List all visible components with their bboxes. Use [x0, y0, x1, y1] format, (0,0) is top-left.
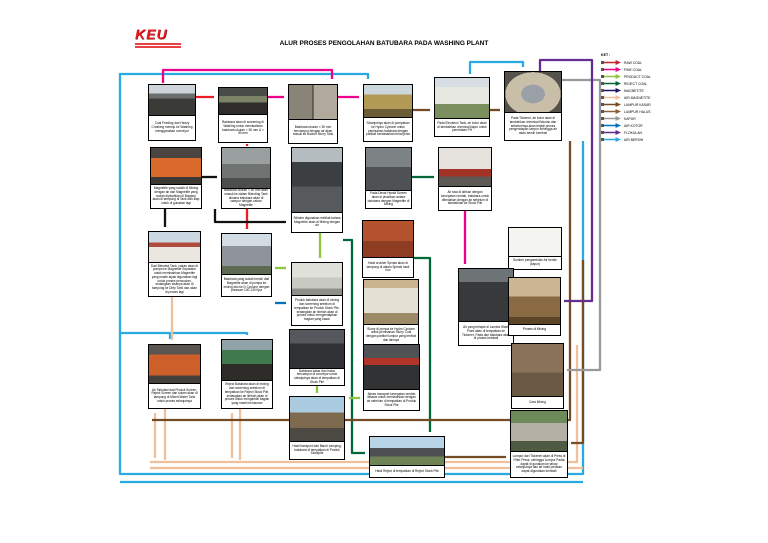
photo-lamela-plant	[459, 269, 513, 321]
step-caption: Pada Elevation Tank, air kotor akan di t…	[437, 122, 488, 133]
legend-arrow-icon	[604, 116, 621, 121]
photo-spirals-material	[363, 221, 413, 257]
legend-arrow-tail	[601, 110, 604, 113]
photo-product-screen	[292, 263, 342, 295]
step-clean-water-source: Sumber pengambilan Air bersih (kapur)	[508, 227, 562, 270]
legend-item: KAPUR	[601, 115, 691, 122]
step-coarse-fine-conveyor: Batubara kasar dan halus bercampur di co…	[289, 329, 345, 386]
photo-mixing-room	[509, 278, 560, 324]
step-filter-press: Lumpur dari Tickener akan di Press di Fi…	[510, 410, 568, 478]
legend-heading: KET :	[601, 53, 691, 57]
step-elevation-tank: Pada Elevation Tank, air kotor akan di t…	[434, 77, 490, 137]
step-caption: Pada Tickener, air kotor akan di tambahk…	[507, 117, 560, 136]
step-caption: Batubara ukuran < 50 mm bercampur dengan…	[291, 126, 336, 137]
legend-item: AIR MAGNETITE	[601, 94, 691, 101]
photo-d-cyclone	[222, 234, 271, 274]
step-caption: Batubara akan di screening di Washing un…	[221, 121, 266, 136]
step-caption: Batubara kasar dan halus bercampur di co…	[292, 370, 343, 385]
logo-underline	[135, 43, 181, 45]
step-caption: Magnetite yang sudah di Mixing dengan ai…	[153, 187, 200, 206]
legend-item: AIR BERSIH	[601, 136, 691, 143]
legend-arrow-icon	[604, 67, 621, 72]
photo-reject-screen	[222, 340, 272, 380]
legend-item: LUMPUR HALUS	[601, 108, 691, 115]
step-caption: Coal Feeding dari Heavy Crushing menuju …	[151, 122, 194, 133]
photo-blending-tank	[222, 148, 270, 188]
step-spirals-box: Hasil crusher Spirals akan di tampung di…	[362, 220, 414, 278]
legend-arrow-icon	[604, 88, 621, 93]
legend-item: FLOKULAN	[601, 129, 691, 136]
legend-arrow-icon	[604, 95, 621, 100]
step-reject-screening: Reject Batubara akan di mixing dan scree…	[221, 339, 273, 409]
step-caption: Air Sirkulasi dari Produk Screen, Reject…	[151, 389, 199, 404]
legend-arrow-tail	[601, 131, 604, 134]
photo-magnetite-machine	[151, 148, 201, 184]
photo-transport-machine	[364, 345, 419, 389]
company-logo: KEU	[135, 27, 195, 48]
step-magnetite-mixing: Magnetite yang sudah di Mixing dengan ai…	[150, 147, 202, 209]
step-caption: Air sisa di alirkan dengan kecepatan ren…	[441, 191, 490, 206]
legend-arrow-icon	[604, 137, 621, 142]
step-silinder: Silinder digunakan melihat bahwa Magneti…	[291, 147, 343, 233]
legend-arrow-icon	[604, 60, 621, 65]
step-coal-feeding: Coal Feeding dari Heavy Crushing menuju …	[148, 84, 196, 141]
photo-reject-conveyor	[370, 437, 444, 465]
legend-arrow-tail	[601, 117, 604, 120]
step-caption: Batubara ukuran < 50 mm akan masuk ke da…	[224, 189, 269, 208]
step-screening: Batubara akan di screening di Washing un…	[218, 87, 268, 143]
step-low-speed-separation: Air sisa di alirkan dengan kecepatan ren…	[438, 147, 492, 211]
step-caption: Hasil crusher Spirals akan di tampung di…	[365, 262, 412, 273]
legend-arrow-tail	[601, 124, 604, 127]
step-slurry-hydro-cyclone: Slurry di pompa ke Hydro Cyclone untuk p…	[363, 279, 419, 346]
logo-underline-2	[135, 46, 181, 48]
step-caption: Lumpur dari Tickener akan di Press di Fi…	[513, 455, 566, 474]
legend-arrow-icon	[604, 81, 621, 86]
photo-filter-press	[511, 411, 567, 451]
photo-conveyor-feeding	[149, 85, 195, 115]
step-caption: Hasil Reject di tempatkan di Reject Stoc…	[372, 470, 443, 474]
photo-mud-pond	[512, 344, 563, 396]
photo-silinder	[292, 148, 342, 212]
step-caption: Silinder digunakan melihat bahwa Magneti…	[294, 217, 341, 228]
photo-conveyor-interior	[290, 330, 344, 368]
step-caption: Hasil transport dari Barch camping, batu…	[292, 445, 343, 456]
legend-item: FINE COAL	[601, 66, 691, 73]
diagram-page: KEU ALUR PROSES PENGOLAHAN BATUBARA PADA…	[0, 0, 768, 543]
step-magnetite-separator: Dari Blended Tank, cairan akan di pompa …	[148, 231, 201, 297]
step-lamela-wash-plant: Air yang terlapis di Lamela Wash Plant a…	[458, 268, 514, 346]
step-product-screening: Produk batubara akan di mixing dan scree…	[291, 262, 343, 326]
photo-thickener	[505, 72, 561, 112]
legend-arrow-tail	[601, 138, 604, 141]
photo-slurry-tank	[289, 85, 337, 119]
step-caption: Sumber pengambilan Air bersih (kapur)	[511, 259, 560, 266]
step-caption: Dari Blended Tank, cairan akan di pompa …	[151, 265, 199, 295]
legend-item: AIR KOTOR	[601, 122, 691, 129]
page-title: ALUR PROSES PENGOLAHAN BATUBARA PADA WAS…	[234, 40, 534, 47]
legend-arrow-icon	[604, 123, 621, 128]
legend-item: PRODUCT COAL	[601, 73, 691, 80]
legend-arrow-tail	[601, 82, 604, 85]
step-low-speed-transport: Akses transport kecepatan rendah dibawa …	[363, 344, 420, 411]
step-hydro-cyclone-pump: Selanjutnya akan di pompakan ke Hydro Cy…	[363, 84, 413, 142]
step-thickener: Pada Tickener, air kotor akan di tambahk…	[504, 71, 562, 141]
photo-two-cyclones	[364, 280, 418, 324]
step-product-stockpile: Hasil transport dari Barch camping, batu…	[289, 396, 345, 460]
legend-arrow-icon	[604, 130, 621, 135]
photo-cyclone-structure	[364, 85, 412, 117]
legend-arrow-tail	[601, 89, 604, 92]
legend-item: MAGNETITE	[601, 87, 691, 94]
step-mixing-process: Proses di Mixing	[508, 277, 561, 336]
legend-arrow-icon	[604, 109, 621, 114]
legend-arrow-icon	[604, 74, 621, 79]
step-caption: Slurry di pompa ke Hydro Cyclone untuk p…	[366, 328, 417, 343]
legend-item: REJECT COAL	[601, 80, 691, 87]
step-bucket-slurry-tank: Batubara ukuran < 50 mm bercampur dengan…	[288, 84, 338, 144]
photo-water-tank-machine	[149, 345, 200, 383]
step-mixed-water-tank: Air Sirkulasi dari Produk Screen, Reject…	[148, 344, 201, 409]
step-caption: Akses transport kecepatan rendah dibawa …	[366, 393, 418, 408]
step-caption: Selanjutnya akan di pompakan ke Hydro Cy…	[366, 122, 411, 137]
legend-arrow-tail	[601, 61, 604, 64]
step-reject-stockpile: Hasil Reject di tempatkan di Reject Stoc…	[369, 436, 445, 478]
step-caption: Air yang terlapis di Lamela Wash Plant a…	[461, 326, 512, 341]
step-blending-tank: Batubara ukuran < 50 mm akan masuk ke da…	[221, 147, 271, 209]
legend-arrow-tail	[601, 103, 604, 106]
legend-arrow-tail	[601, 75, 604, 78]
photo-stockpile-conveyor	[290, 397, 344, 441]
photo-separator-building	[149, 232, 200, 262]
legend-arrow-icon	[604, 102, 621, 107]
step-caption: Proses di Mixing	[511, 328, 559, 332]
step-caption: Batubara yang sudah bersih dari Magnetit…	[224, 278, 270, 293]
step-mixing-method: Cara Mixing	[511, 343, 564, 409]
legend-item: RAW COAL	[601, 59, 691, 66]
photo-elevation-tank	[435, 78, 489, 118]
step-caption: Reject Batubara akan di mixing dan scree…	[224, 383, 271, 405]
step-d-cyclone: Batubara yang sudah bersih dari Magnetit…	[221, 233, 272, 297]
step-desal-screen: Pada Desal Hymid Screen akan di pisahkan…	[365, 147, 412, 209]
photo-water-source	[509, 228, 561, 256]
step-caption: Produk batubara akan di mixing dan scree…	[294, 299, 341, 321]
step-caption: Pada Desal Hymid Screen akan di pisahkan…	[368, 192, 410, 207]
logo-text: KEU	[135, 26, 168, 42]
legend-arrow-tail	[601, 96, 604, 99]
legend-item: LUMPUR KASAR	[601, 101, 691, 108]
photo-desal-screen	[366, 148, 411, 190]
step-caption: Cara Mixing	[514, 401, 562, 405]
legend-arrow-tail	[601, 68, 604, 71]
legend: KET : RAW COAL FINE COAL PRODUCT COAL RE…	[601, 53, 691, 143]
photo-white-machines	[439, 148, 491, 186]
photo-screening	[219, 88, 267, 114]
